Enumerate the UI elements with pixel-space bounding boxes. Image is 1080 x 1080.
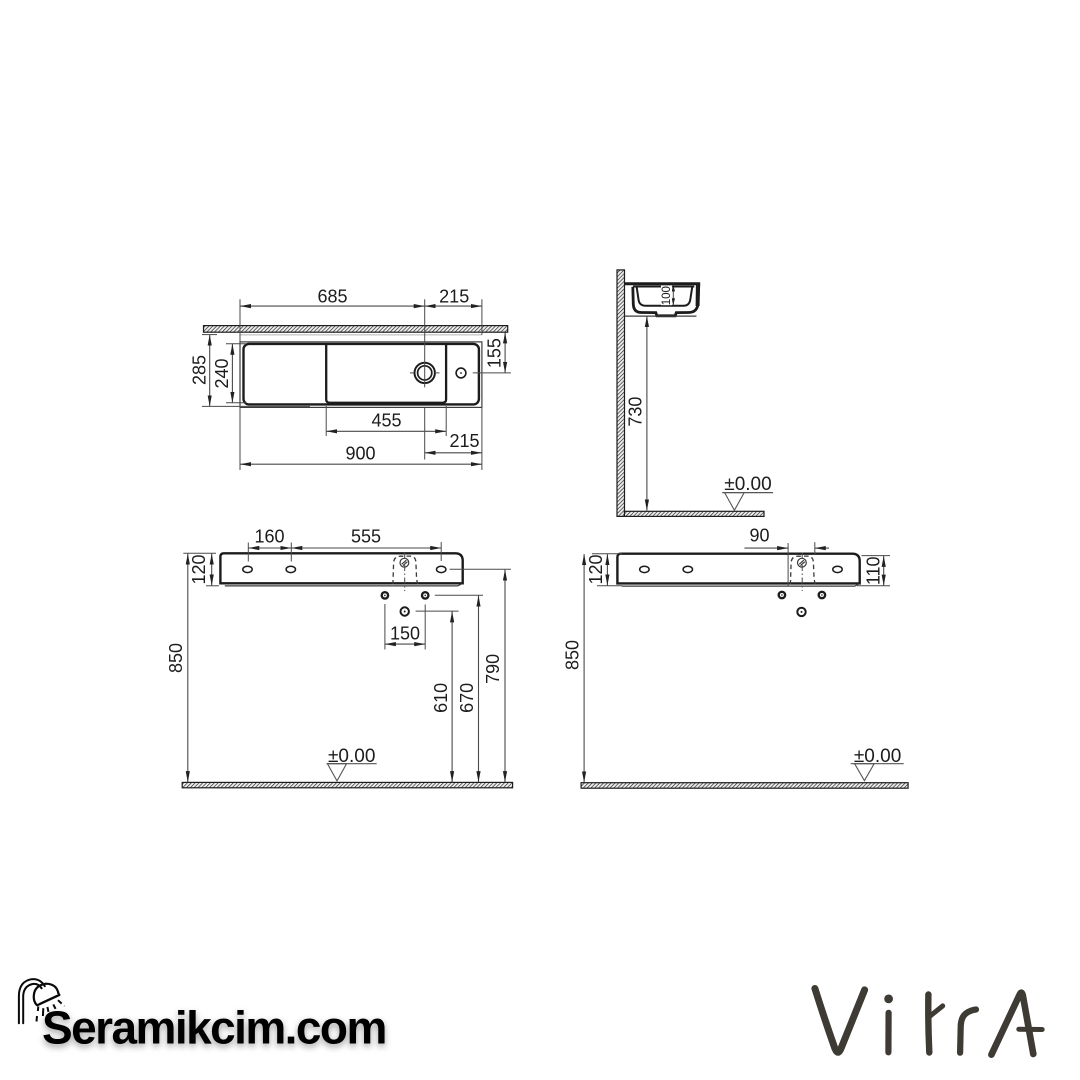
svg-text:455: 455 — [371, 411, 401, 431]
svg-text:150: 150 — [390, 623, 420, 643]
svg-text:120: 120 — [586, 554, 606, 584]
svg-text:610: 610 — [431, 683, 451, 713]
svg-text:790: 790 — [483, 654, 503, 684]
svg-text:555: 555 — [351, 526, 381, 546]
svg-text:155: 155 — [485, 338, 505, 368]
svg-text:900: 900 — [345, 443, 375, 463]
svg-text:285: 285 — [189, 355, 209, 385]
svg-text:120: 120 — [189, 554, 209, 584]
svg-text:100: 100 — [661, 286, 673, 305]
svg-text:850: 850 — [563, 640, 583, 670]
svg-text:685: 685 — [317, 286, 347, 306]
svg-text:215: 215 — [449, 431, 479, 451]
svg-text:110: 110 — [864, 556, 884, 585]
svg-text:90: 90 — [749, 526, 769, 546]
svg-text:670: 670 — [457, 683, 477, 713]
svg-text:215: 215 — [439, 286, 469, 306]
svg-text:730: 730 — [625, 397, 645, 427]
svg-text:±0.00: ±0.00 — [724, 474, 771, 495]
svg-text:240: 240 — [212, 358, 232, 388]
svg-text:160: 160 — [254, 526, 284, 546]
svg-text:Seramikcim.com: Seramikcim.com — [42, 1002, 386, 1054]
svg-text:850: 850 — [166, 643, 186, 673]
